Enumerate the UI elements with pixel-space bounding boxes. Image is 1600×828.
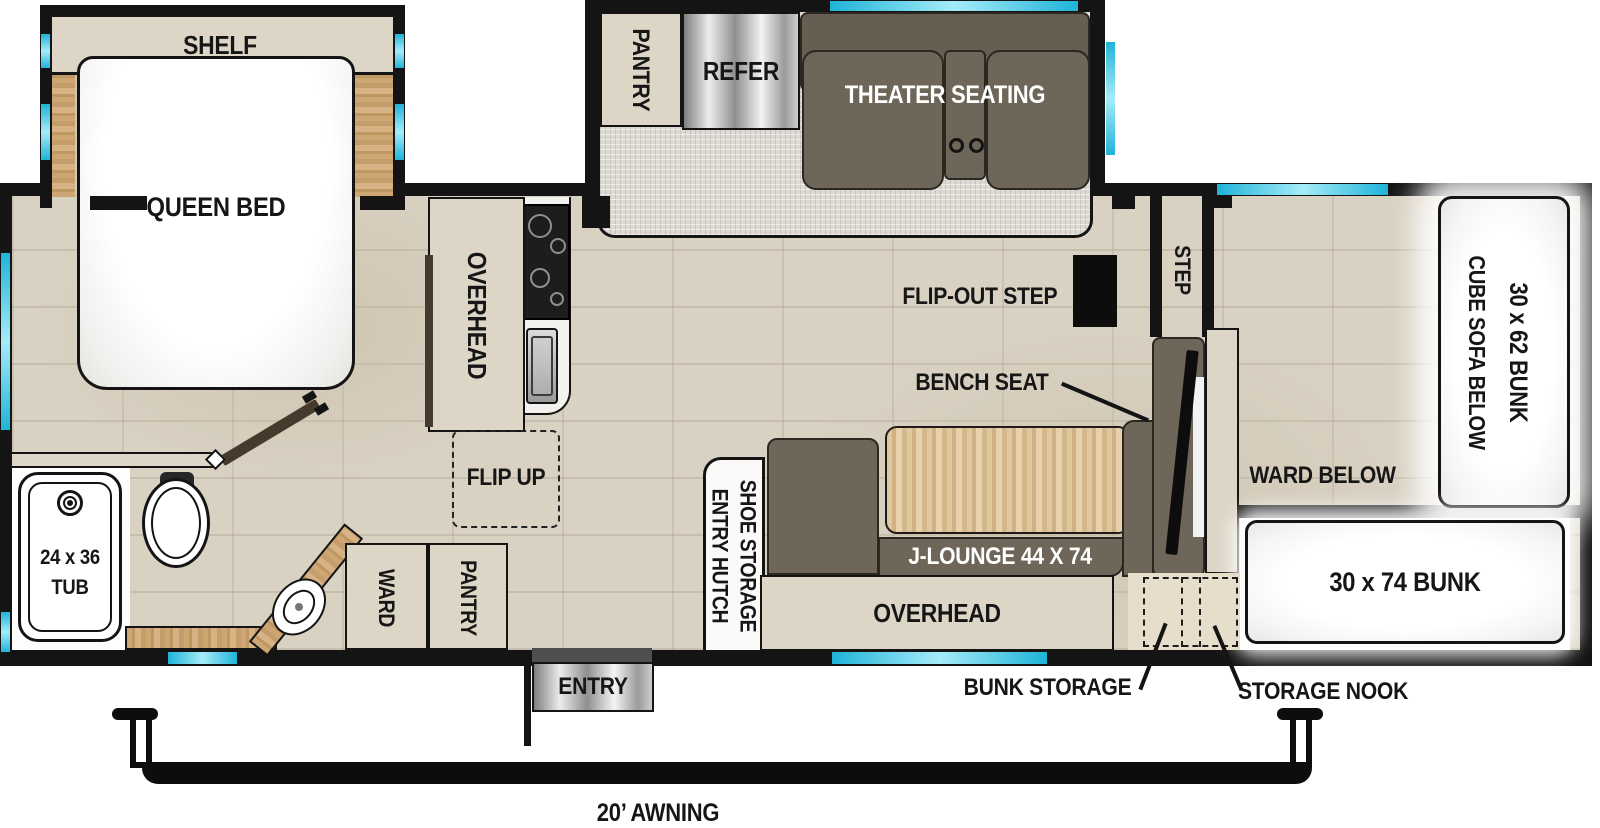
bench-connector [1122,420,1154,577]
wall-step-left [1150,196,1162,337]
window-bedroom-left-upper [41,34,50,68]
side-cabinet [1205,328,1239,574]
entry-threshold [532,648,652,662]
lounge-overhead-label: OVERHEAD [849,597,1025,629]
burner-icon-3 [550,238,566,254]
window-bottom-bath [168,652,237,664]
tub-size-label: 24 x 36 [30,545,109,571]
ward-label-wrap: WARD [366,550,406,645]
kitchen-cabinet-accent [425,255,433,427]
window-left-wall [1,253,10,430]
pantry-top-label-wrap: PANTRY [610,17,670,122]
dinette-table [885,426,1130,534]
theater-seat-left [802,50,944,190]
entry-door-post [524,662,531,746]
queen-bed-label: QUEEN BED [128,190,304,224]
burner-icon-2 [530,268,550,288]
kitchen-overhead-label-wrap: OVERHEAD [446,230,506,400]
flip-out-step-label: FLIP-OUT STEP [901,282,1058,312]
storage-divider-dash-2 [1199,577,1201,647]
step-label: STEP [1170,245,1196,295]
bunk-30x62-label: 30 x 62 BUNK [1503,282,1532,422]
bench-table-leaf [1193,377,1204,537]
theater-seating-label: THEATER SEATING [835,80,1055,110]
storage-divider-dash-1 [1181,577,1183,647]
window-bedroom-right-upper [395,34,404,68]
bath-sink-drain [295,603,303,611]
bed-deck-wood-right [352,75,393,197]
theater-slide-wall-left [585,0,597,196]
pantry-top-label: PANTRY [626,28,654,111]
theater-slide-wall-right [1093,0,1105,196]
wall-stub-step [1112,183,1135,209]
step-label-wrap: STEP [1163,208,1202,332]
burner-icon-4 [550,292,564,306]
bunk-30x62-label-wrap: 30 x 62 BUNK [1496,206,1538,498]
bench-seat-label: BENCH SEAT [909,368,1048,398]
pantry-bottom-label-wrap: PANTRY [448,550,488,645]
bunk-storage-label: BUNK STORAGE [966,672,1129,704]
window-bedroom-right-lower [395,104,404,160]
entry-hutch-label: ENTRY HUTCH [707,489,733,624]
wall-stub-bedroom-right [360,196,405,210]
ward-below-label: WARD BELOW [1250,460,1395,492]
entry-label: ENTRY [549,671,637,703]
window-bottom-lounge [832,652,1047,664]
bed-deck-wood-left [52,75,75,197]
awning-bracket-leg-left [130,714,152,768]
window-left-wall-low [1,612,10,652]
cupholder-icon-right [969,138,984,153]
storage-nook-label: STORAGE NOOK [1243,676,1403,708]
bunk-30x74-label: 30 x 74 BUNK [1299,566,1510,598]
wall-right [1580,183,1592,666]
window-theater-top [830,1,1078,11]
refer-label: REFER [697,55,785,87]
window-bunkroom-top [1217,184,1388,195]
shoe-storage-label: SHOE STORAGE [735,480,761,632]
j-lounge-label: J-LOUNGE 44 X 74 [894,540,1105,574]
bathroom-wall [12,452,218,468]
theater-console [944,50,986,180]
tub-faucet-icon-dot [67,500,73,506]
awning-label: 20’ AWNING [570,798,746,828]
cube-sofa-label-wrap: CUBE SOFA BELOW [1456,206,1496,498]
cube-sofa-label: CUBE SOFA BELOW [1463,255,1490,449]
kitchen-sink-basin [531,336,553,396]
floorplan-canvas: SHELF QUEEN BED PANTRY REFER THEATER SEA… [0,0,1600,828]
kitchen-overhead-label: OVERHEAD [461,251,492,379]
wall-stub-galley [582,196,610,228]
window-bedroom-left-lower [41,104,50,160]
awning-bracket-leg-right [1290,714,1312,768]
j-lounge-end-seat [767,438,879,575]
shoe-storage-label-wrap: SHOE STORAGE [733,462,762,650]
entry-hutch-label-wrap: ENTRY HUTCH [705,468,734,644]
awning-bar [142,762,1312,784]
theater-seat-right [986,50,1090,190]
wall-bottom [0,650,1592,666]
flip-out-step [1073,255,1117,327]
tub-label: TUB [30,575,109,601]
wall-stub-bedroom-left [90,196,147,210]
window-theater-side [1106,42,1115,155]
cupholder-icon-left [949,138,964,153]
toilet-seat [151,487,201,559]
bedroom-slide-wall-top [40,5,405,17]
flip-up-label: FLIP UP [462,462,550,494]
wall-top-middle [400,183,597,196]
pantry-bottom-label: PANTRY [455,560,481,636]
wall-step-right-v [1202,196,1214,337]
ward-label: WARD [373,568,399,626]
burner-icon-1 [528,214,552,238]
